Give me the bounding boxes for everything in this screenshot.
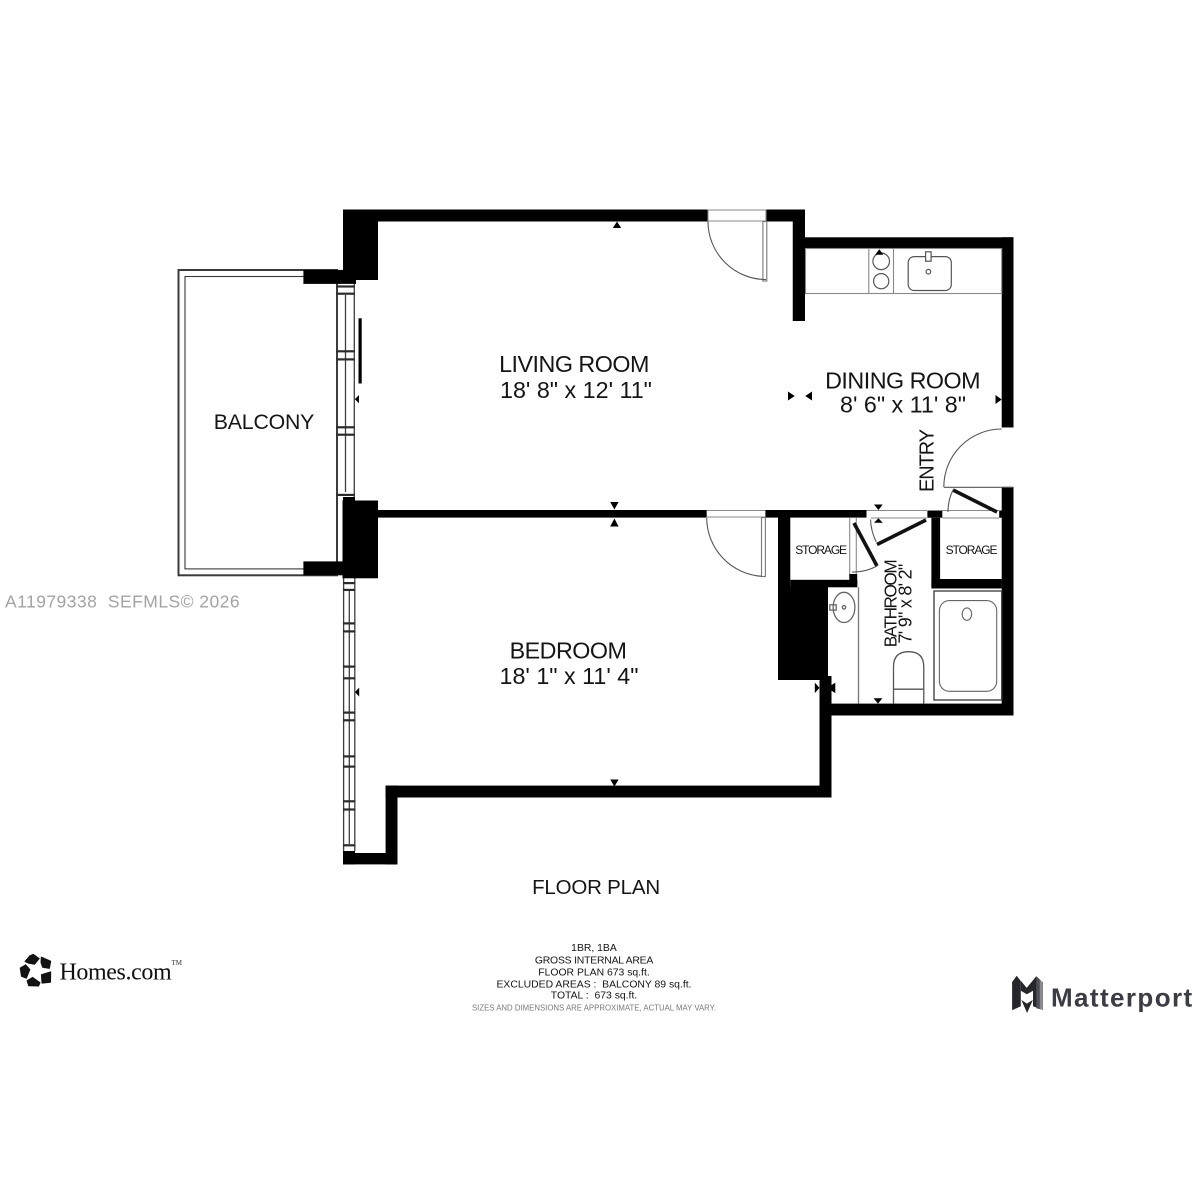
svg-text:7' 9" x 8' 2": 7' 9" x 8' 2" (896, 564, 916, 643)
svg-text:DINING ROOM: DINING ROOM (825, 368, 980, 394)
svg-text:ENTRY: ENTRY (917, 429, 939, 492)
svg-text:A11979338 SEFMLS© 2026: A11979338 SEFMLS© 2026 (5, 592, 240, 612)
svg-text:SIZES AND DIMENSIONS ARE APPRO: SIZES AND DIMENSIONS ARE APPROXIMATE, AC… (472, 1004, 716, 1013)
svg-text:Homes.com: Homes.com (60, 960, 172, 986)
svg-text:LIVING ROOM: LIVING ROOM (499, 351, 649, 377)
svg-text:18' 1" x 11' 4": 18' 1" x 11' 4" (500, 663, 639, 689)
svg-text:STORAGE: STORAGE (946, 543, 998, 557)
svg-text:Matterport: Matterport (1051, 982, 1194, 1012)
svg-text:EXCLUDED AREAS : BALCONY 89 s: EXCLUDED AREAS : BALCONY 89 sq.ft. (497, 980, 692, 991)
svg-text:STORAGE: STORAGE (795, 543, 847, 557)
svg-text:TM: TM (172, 959, 183, 967)
svg-text:BEDROOM: BEDROOM (510, 638, 627, 664)
svg-text:GROSS INTERNAL AREA: GROSS INTERNAL AREA (535, 956, 653, 967)
svg-text:8' 6" x 11' 8": 8' 6" x 11' 8" (840, 392, 966, 418)
svg-text:FLOOR PLAN 673 sq.ft.: FLOOR PLAN 673 sq.ft. (538, 968, 649, 979)
svg-text:FLOOR PLAN: FLOOR PLAN (532, 876, 660, 899)
svg-text:BALCONY: BALCONY (214, 410, 314, 434)
svg-text:18' 8" x 12' 11": 18' 8" x 12' 11" (500, 377, 652, 403)
svg-text:TOTAL : 673 sq.ft.: TOTAL : 673 sq.ft. (551, 990, 637, 1001)
svg-text:1BR, 1BA: 1BR, 1BA (571, 943, 617, 954)
